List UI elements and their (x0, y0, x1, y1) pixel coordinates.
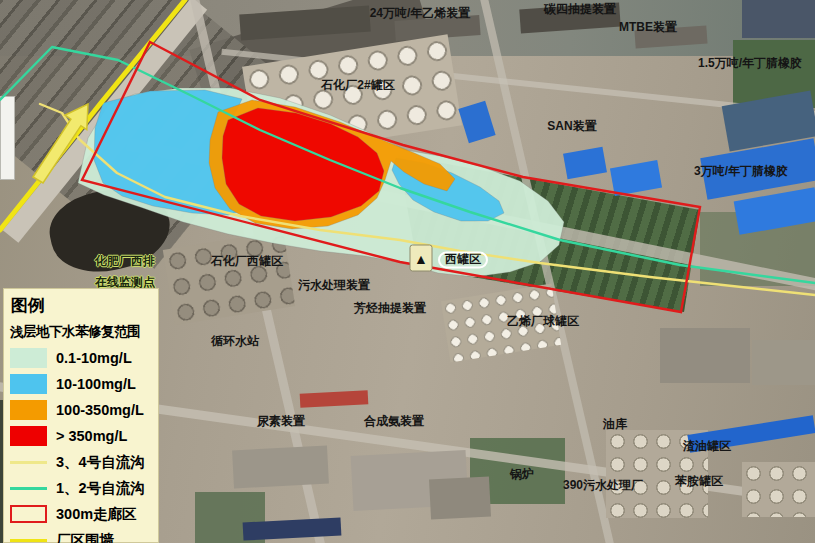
legend-item: 厂区围墙 (10, 528, 152, 543)
map-label: 390污水处理厂 (563, 479, 643, 492)
legend-swatch-line (10, 452, 47, 472)
legend-label: > 350mg/L (56, 428, 127, 444)
legend-label: 厂区围墙 (56, 531, 114, 543)
map-label: SAN装置 (547, 120, 596, 133)
map-label: 油库 (603, 418, 627, 431)
legend-swatch-rect (10, 504, 47, 524)
map-label: 石化厂西罐区 (211, 255, 283, 268)
map-label: 芳烃抽提装置 (354, 302, 426, 315)
map-label: 污水处理装置 (298, 279, 370, 292)
legend-label: 3、4号自流沟 (56, 453, 145, 472)
map-label: 石化厂2#罐区 (321, 79, 394, 92)
legend-label: 1、2号自流沟 (56, 479, 145, 498)
map-label: 尿素装置 (257, 415, 305, 428)
map-label: 循环水站 (211, 335, 259, 348)
map-label: 化肥厂西排 (95, 255, 155, 268)
legend-swatch-fill (10, 426, 47, 446)
map-label: 合成氨装置 (364, 415, 424, 428)
legend-item: 10-100mg/L (10, 372, 152, 396)
legend-label: 10-100mg/L (56, 376, 136, 392)
map-label: 24万吨/年乙烯装置 (370, 7, 471, 20)
legend-swatch-fill (10, 348, 47, 368)
legend-title: 图例 (11, 294, 152, 317)
legend-items: 0.1-10mg/L10-100mg/L100-350mg/L> 350mg/L… (10, 346, 152, 543)
map-label: 渣油罐区 (683, 440, 731, 453)
map-label: 1.5万吨/年丁腈橡胶 (698, 57, 802, 70)
legend-panel: 图例 浅层地下水苯修复范围 0.1-10mg/L10-100mg/L100-35… (3, 288, 159, 543)
map-label: 3万吨/年丁腈橡胶 (694, 165, 788, 178)
legend-label: 0.1-10mg/L (56, 350, 132, 366)
legend-swatch-line (10, 478, 47, 498)
map-label: 锅炉 (510, 468, 534, 481)
north-arrow-icon: ▲ (410, 245, 433, 272)
legend-item: 100-350mg/L (10, 398, 152, 422)
map-label: 碳四抽提装置 (544, 3, 616, 16)
legend-item: 3、4号自流沟 (10, 450, 152, 474)
legend-item: 0.1-10mg/L (10, 346, 152, 370)
legend-item: 1、2号自流沟 (10, 476, 152, 500)
legend-item: > 350mg/L (10, 424, 152, 448)
map-label: 乙烯厂球罐区 (507, 315, 579, 328)
legend-item: 300m走廊区 (10, 502, 152, 526)
map-label: 西罐区 (438, 251, 488, 268)
legend-swatch-line (10, 530, 47, 543)
map-label: 苯胺罐区 (675, 475, 723, 488)
legend-subtitle: 浅层地下水苯修复范围 (10, 323, 152, 341)
legend-swatch-fill (10, 400, 47, 420)
map-label: MTBE装置 (619, 21, 677, 34)
legend-label: 100-350mg/L (56, 402, 144, 418)
site-map: 24万吨/年乙烯装置碳四抽提装置MTBE装置1.5万吨/年丁腈橡胶石化厂2#罐区… (0, 0, 815, 543)
legend-swatch-fill (10, 374, 47, 394)
legend-label: 300m走廊区 (56, 505, 137, 524)
